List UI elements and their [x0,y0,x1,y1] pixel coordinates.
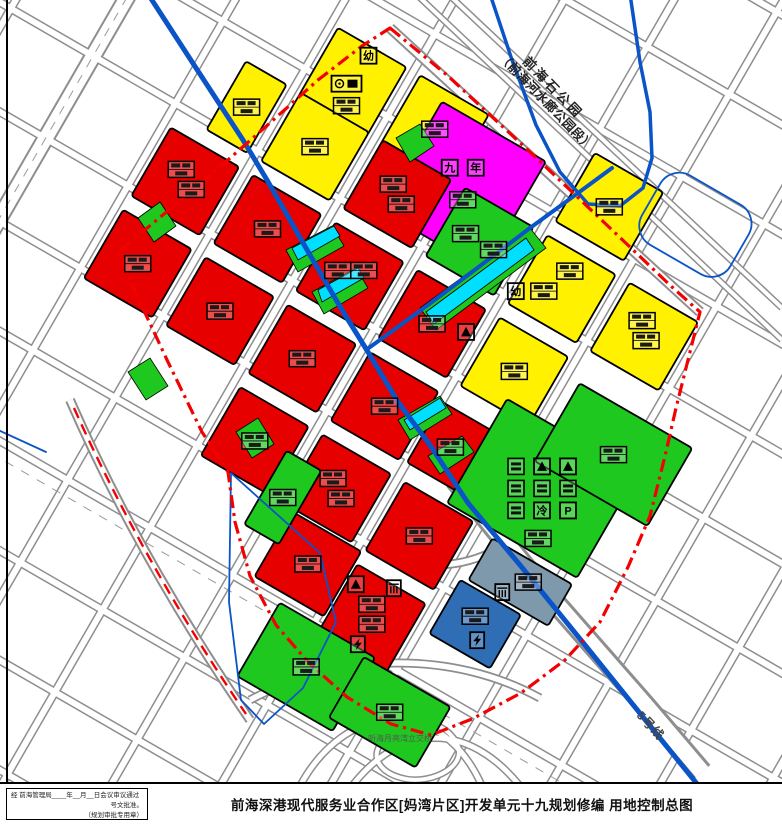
parcel-label-text [429,131,441,135]
parcel-label-text [484,244,493,248]
parcel-label-text [296,361,308,365]
parcel-label-text [327,480,339,484]
parcel-label-text [564,273,576,277]
parcel-label-text [185,191,197,195]
parcel-label-text [366,626,378,630]
parcel-label-text [342,492,350,496]
parcel-label-text [256,435,264,439]
facility-icon [511,511,521,514]
parcel-label-text [532,540,544,544]
parcel-label-text [522,584,534,588]
school-icon: 九 [443,161,455,175]
parcel-label-text [373,598,381,602]
parcel-label-text [171,163,180,167]
facility-icon [537,489,547,492]
facility-icon [537,484,547,487]
parcel-label-text [476,610,484,614]
stamp-line-1: 经 前海管理局____年__月__日会议审议通过 [11,791,143,801]
parcel-label-text [409,530,418,534]
parcel-label-text [453,194,462,198]
facility-icon [534,480,550,496]
parking-icon: P [564,505,571,517]
parcel-label-text [426,326,438,330]
parcel-label-text [182,163,190,167]
parcel-label-text [614,449,622,453]
parcel-label-text [460,236,472,240]
kindergarten-icon: 幼 [363,49,374,63]
parcel-label-text [373,618,381,622]
parcel-label-text [365,264,373,268]
parcel-label-text [515,365,523,369]
parcel-label-text [465,610,474,614]
cooling-station-icon: 冷 [537,503,548,517]
facility-icon [511,484,521,487]
parcel-label-text [440,441,449,445]
parcel-label-text [387,186,399,190]
parcel-label-text [277,500,289,504]
parcel-label-text [464,194,472,198]
facility-icon [511,506,521,509]
parcel-label-text [560,265,569,269]
parcel-label-text [528,532,537,536]
parcel-label-text [643,315,651,319]
parcel-label-text [504,365,513,369]
parcel-label-text [391,706,399,710]
facility-icon [508,458,524,474]
parcel-label-text [300,669,312,673]
parcel-label-text [632,315,641,319]
parcel-label-text [636,323,648,327]
stamp-line-3: （规划审批专用章） [11,811,143,821]
parcel-label-text [132,266,144,270]
parcel-label-text [269,223,277,227]
parcel-label-text [436,123,444,127]
parcel-label-text [640,343,652,347]
parcel-label-text [292,353,301,357]
parcel-label-text [457,202,469,206]
facility-icon [563,484,573,487]
parcel-label-text [309,149,321,153]
facility-icon [508,502,524,518]
parcel-label-text [210,305,219,309]
planning-map-page: 幼幼九年冷P前海石公园（前海河水廊公园段）5号线听海月亮湾立交桥 经 前海管理局… [0,0,782,824]
parcel-label-text [610,201,618,205]
parcel-label-text [175,171,187,175]
parcel-label-text [433,318,441,322]
parcel-label-text [214,313,226,317]
facility-icon [511,489,521,492]
parcel-label-text [571,265,579,269]
parcel-label-text [647,335,655,339]
parcel-label-text [508,373,520,377]
parcel-label-text [245,435,254,439]
title-bar: 经 前海管理局____年__月__日会议审议通过 号文批准。 （规划审批专用章）… [0,782,782,824]
parcel-label-text [298,558,307,562]
parcel-label-text [607,457,619,461]
parcel-label-text [386,400,394,404]
parcel-label-text [467,228,475,232]
parcel-label-text [469,618,481,622]
parcel-label-text [258,223,267,227]
parcel-label-text [237,101,246,105]
parcel-label-text [495,244,503,248]
parcel-label-text [309,558,317,562]
parcel-label-text [422,318,431,322]
approval-stamp-box: 经 前海管理局____年__月__日会议审议通过 号文批准。 （规划审批专用章） [6,788,148,820]
parcel-label-text [331,492,340,496]
parcel-label-text [395,206,407,210]
parcel-label-text [303,353,311,357]
parcel-label-text [221,305,229,309]
land-use-map: 幼幼九年冷P前海石公园（前海河水廊公园段）5号线听海月亮湾立交桥 [0,0,782,784]
facility-icon [511,467,521,470]
parcel-label-text [380,706,389,710]
road-casing [0,0,104,697]
parcel-label-text [413,538,425,542]
parcel-label-text [545,285,553,289]
parcel-label-text [456,228,465,232]
parcel-label-text [323,472,332,476]
parcel-label-text [337,100,346,104]
stamp-line-2: 号文批准。 [11,801,143,811]
parcel-label-text [383,178,392,182]
facility-icon [511,462,521,465]
parcel-label-text [420,530,428,534]
parcel-label-text [307,661,315,665]
parcel-label-text [534,285,543,289]
parcel-label-text [305,141,314,145]
parcel-label-text [339,264,347,268]
parcel-label-text [366,606,378,610]
map-frame-line [6,0,8,784]
parcel-label-text [316,141,324,145]
parcel-label-text [599,201,608,205]
parcel-label-text [328,264,337,268]
interchange-label: 听海月亮湾立交桥 [368,733,432,743]
parcel-label-text [529,576,537,580]
facility-icon [563,489,573,492]
map-title: 前海深港现代服务业合作区[妈湾片区]开发单元十九规划修编 用地控制总图 [150,784,774,824]
parcel-label-text [488,252,500,256]
bus-terminal-icon [348,80,358,88]
parcel-label-text [332,272,344,276]
parcel-label-text [249,443,261,447]
parcel-label-text [603,449,612,453]
parcel-label-text [241,109,253,113]
parcel-label-text [362,598,371,602]
parcel-label-text [192,183,200,187]
facility-icon [560,480,576,496]
parcel-label-text [603,209,615,213]
parcel-label-text [335,500,347,504]
parcel-label-text [334,472,342,476]
parcel-label-text [391,198,400,202]
school-icon: 年 [470,161,481,175]
parcel-label-text [358,272,370,276]
parcel-label-text [425,123,434,127]
parcel-label-text [273,492,282,496]
parcel-label-text [139,258,147,262]
parcel-label-text [402,198,410,202]
parcel-label-text [128,258,137,262]
parcel-label-text [379,408,391,412]
parcel-label-text [341,108,353,112]
parcel-label-text [354,264,363,268]
parcel-label-text [302,566,314,570]
parcel-label-text [181,183,190,187]
parcel-label-text [539,532,547,536]
parcel-label-text [444,449,456,453]
parcel-label-text [262,231,274,235]
parcel-label-text [451,441,459,445]
bus-terminal-icon [338,82,340,84]
parcel-label-text [296,661,305,665]
parcel-label-text [538,293,550,297]
kindergarten-icon: 幼 [510,284,521,298]
facility-icon [508,480,524,496]
parcel-label-text [348,100,356,104]
parcel-label-text [248,101,256,105]
parcel-label-text [375,400,384,404]
parcel-label-text [394,178,402,182]
parcel-label-text [362,618,371,622]
parcel-label-text [636,335,645,339]
parcel-label-text [284,492,292,496]
parcel-label-text [518,576,527,580]
road-surface [0,0,104,697]
parcel-label-text [384,714,396,718]
